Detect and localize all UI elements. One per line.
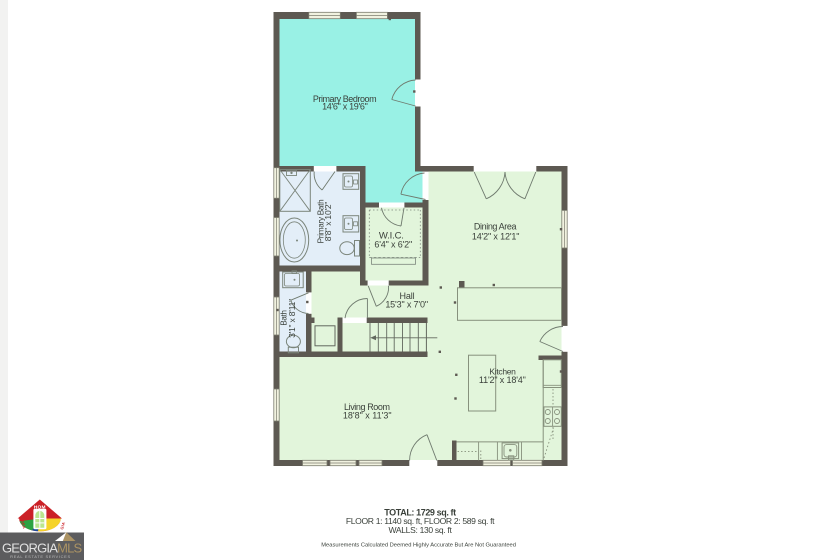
svg-text:15'3" x 7'0": 15'3" x 7'0" [385, 299, 428, 309]
svg-text:8'8" x 10'2": 8'8" x 10'2" [323, 202, 333, 242]
svg-text:3'1" x 8'11": 3'1" x 8'11" [287, 299, 297, 338]
svg-text:11'2" x 18'4": 11'2" x 18'4" [479, 375, 526, 385]
svg-text:14'6" x 19'6": 14'6" x 19'6" [322, 102, 368, 112]
svg-text:18'8" x 11'3": 18'8" x 11'3" [343, 411, 392, 421]
svg-text:HOM: HOM [34, 504, 46, 510]
svg-text:6'4" x 6'2": 6'4" x 6'2" [374, 239, 412, 249]
svg-text:WALLS: 130 sq. ft: WALLS: 130 sq. ft [388, 525, 452, 535]
svg-text:REAL ESTATE SERVICES: REAL ESTATE SERVICES [10, 554, 71, 559]
svg-text:Measurements Calculated Deemed: Measurements Calculated Deemed Highly Ac… [321, 543, 516, 549]
svg-text:14'2" x 12'1": 14'2" x 12'1" [472, 231, 519, 241]
svg-text:Dining Area: Dining Area [474, 221, 517, 231]
